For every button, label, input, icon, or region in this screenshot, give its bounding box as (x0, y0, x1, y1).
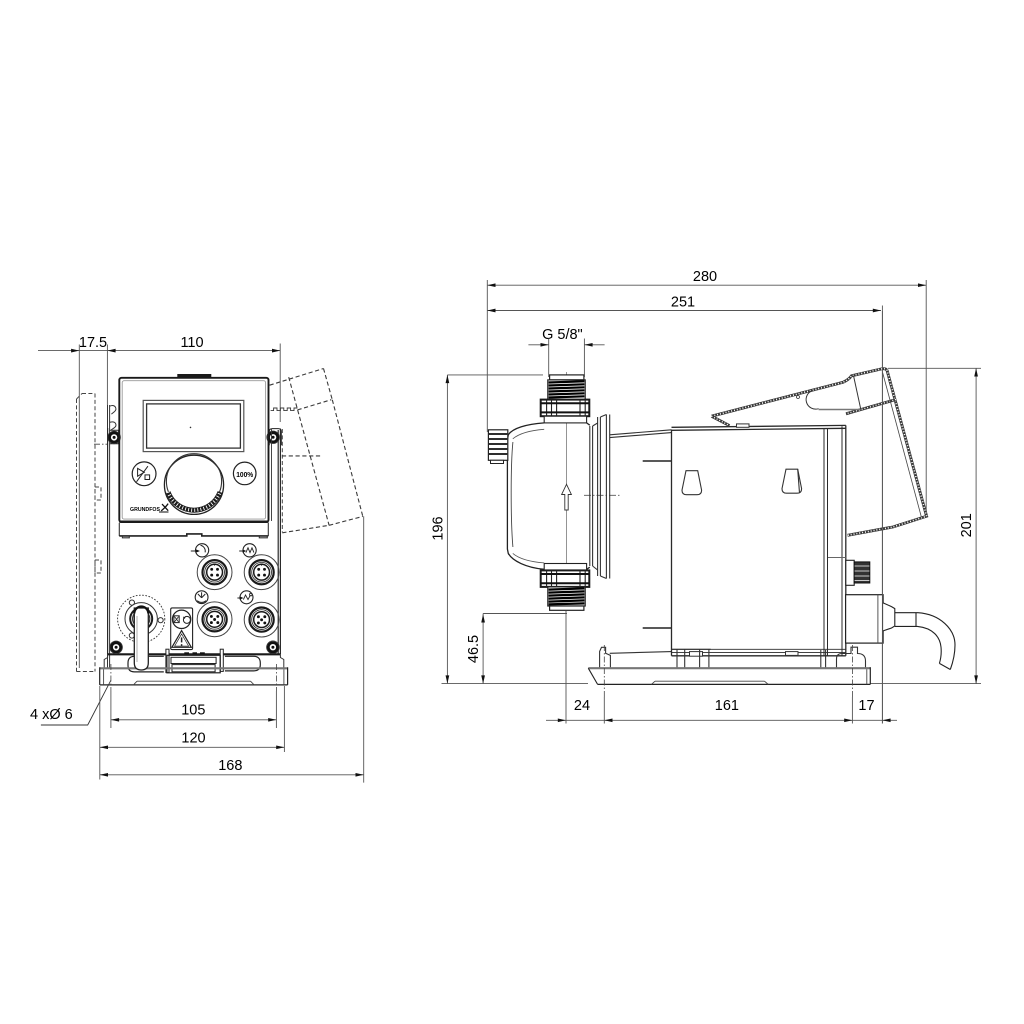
svg-text:GRUNDFOS: GRUNDFOS (130, 507, 160, 513)
svg-text:161: 161 (715, 698, 739, 714)
svg-text:196: 196 (431, 516, 447, 540)
svg-text:46.5: 46.5 (466, 635, 482, 663)
svg-text:251: 251 (671, 294, 695, 310)
svg-text:201: 201 (959, 513, 975, 537)
svg-text:168: 168 (218, 758, 242, 774)
svg-text:100%: 100% (236, 470, 253, 479)
svg-text:120: 120 (181, 730, 205, 746)
svg-text:110: 110 (180, 335, 203, 351)
svg-text:105: 105 (181, 702, 205, 718)
svg-text:4 xØ 6: 4 xØ 6 (30, 707, 73, 723)
svg-text:280: 280 (693, 269, 717, 285)
svg-text:G 5/8": G 5/8" (542, 327, 583, 343)
svg-text:17: 17 (858, 698, 874, 714)
svg-text:17.5: 17.5 (79, 335, 107, 351)
svg-text:24: 24 (574, 698, 590, 714)
